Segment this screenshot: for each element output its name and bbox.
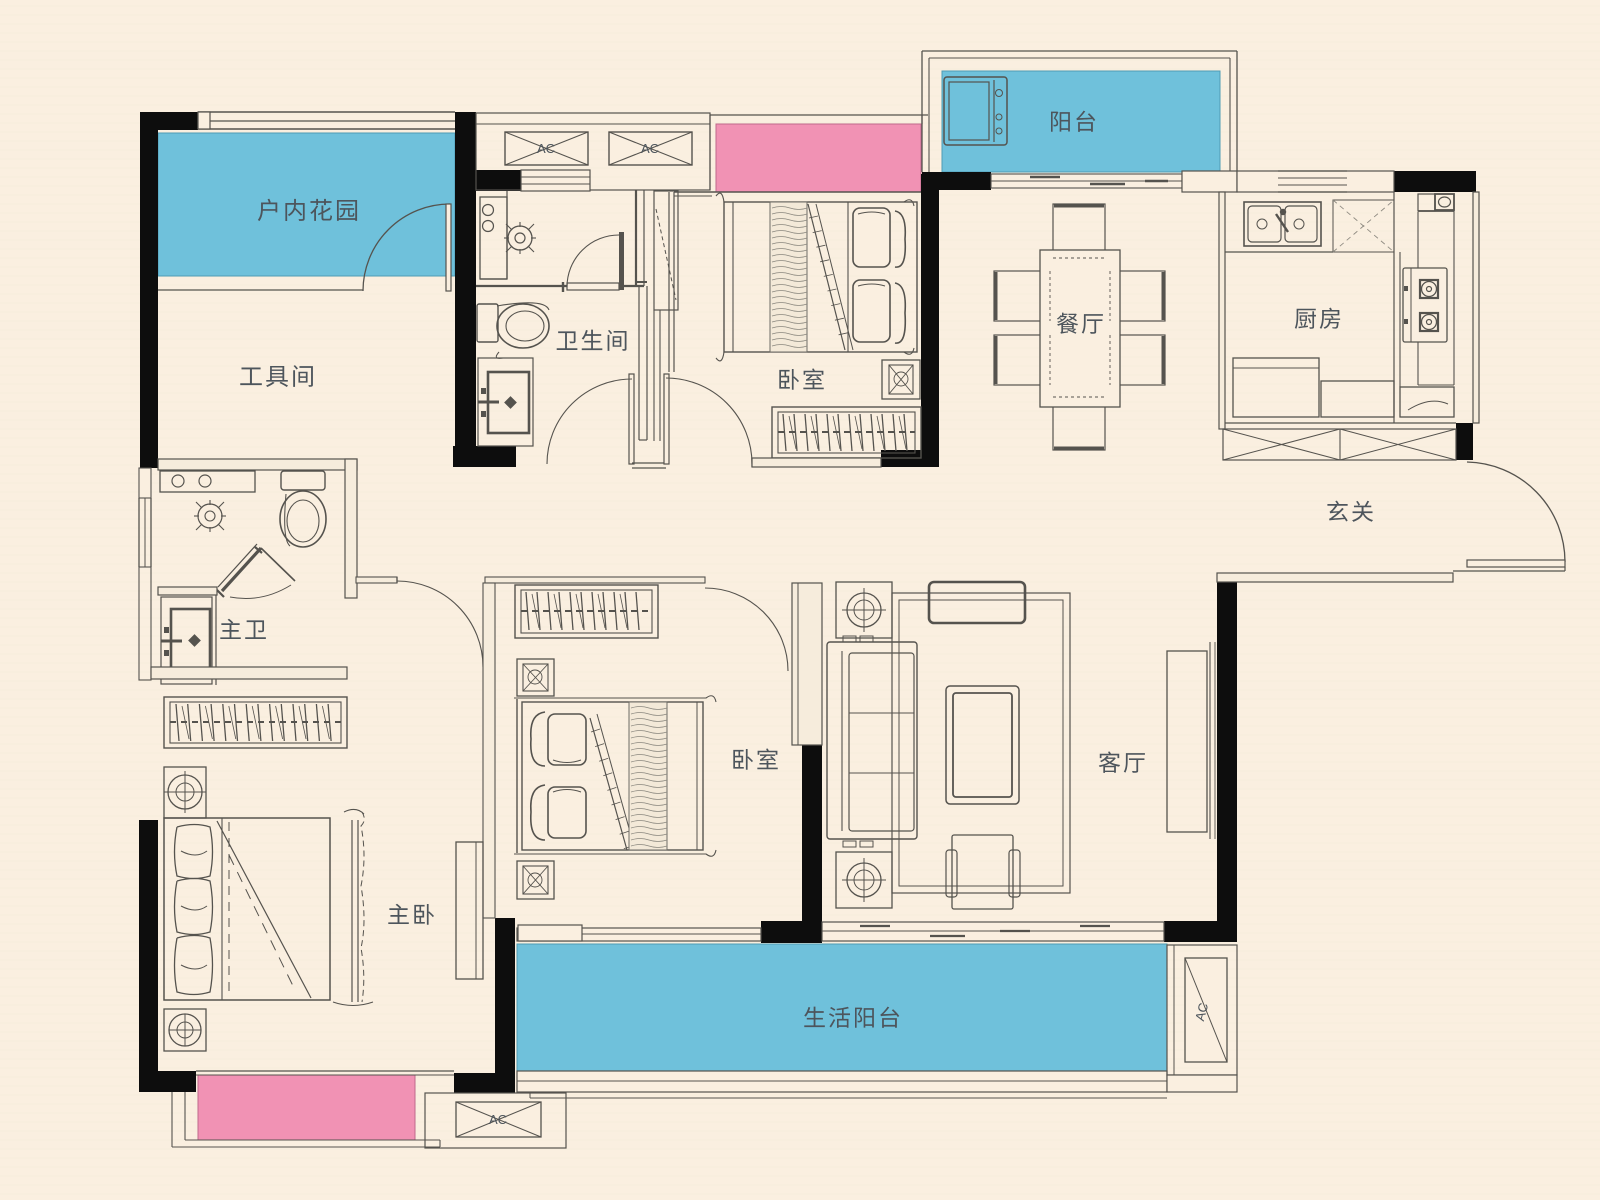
svg-text:AC: AC [537,141,555,156]
svg-text:AC: AC [641,141,659,156]
svg-text:AC: AC [489,1112,507,1127]
